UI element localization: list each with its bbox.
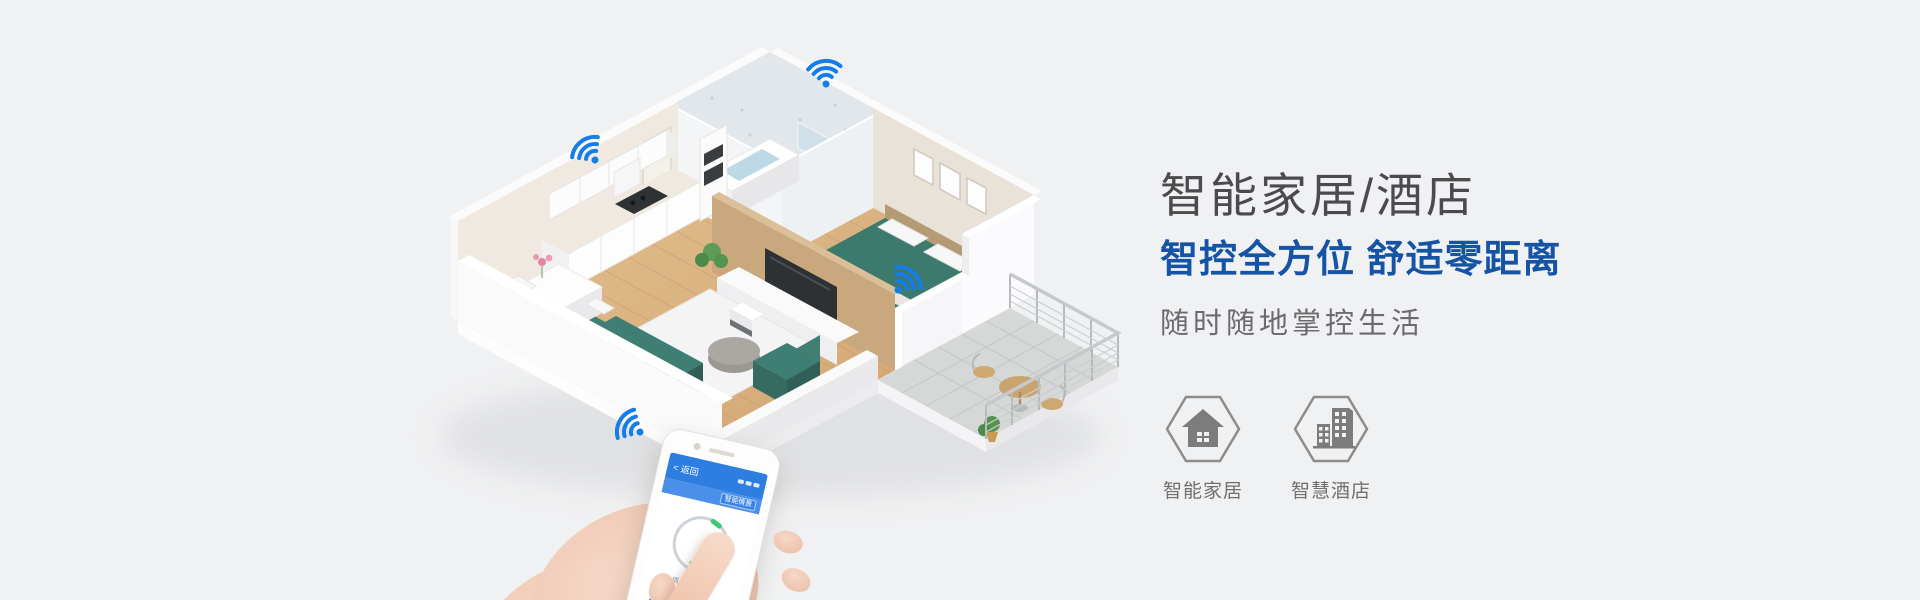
back-button: < 返回	[672, 460, 700, 478]
category-row: 智能家居	[1160, 392, 1374, 503]
fingertip	[778, 564, 815, 597]
hero-subtitle: 智控全方位 舒适零距离	[1160, 239, 1562, 283]
hero-tagline: 随时随地掌控生活	[1160, 300, 1562, 342]
category-label: 智能家居	[1163, 476, 1243, 503]
house-icon	[1182, 409, 1224, 447]
status-icons	[737, 479, 759, 488]
category-smart-hotel[interactable]: 智慧酒店	[1288, 392, 1374, 503]
hexagon-house-icon	[1163, 392, 1243, 466]
phone-camera-dot	[693, 442, 701, 450]
fingertip	[770, 527, 805, 557]
page-title: 智能家居/酒店	[1160, 170, 1562, 222]
pouf	[708, 337, 760, 373]
phone-speaker	[709, 448, 735, 458]
dial-tick-top	[710, 518, 723, 530]
hexagon-building-icon	[1291, 392, 1371, 466]
hero-banner: < 返回 智能情景 情景已开启 ⊙ 灯光控制	[0, 0, 1920, 600]
category-label: 智慧酒店	[1291, 476, 1371, 503]
copy-block: 智能家居/酒店 智控全方位 舒适零距离 随时随地掌控生活	[1160, 170, 1562, 342]
category-smart-home[interactable]: 智能家居	[1160, 392, 1246, 503]
hand-holding-phone: < 返回 智能情景 情景已开启 ⊙ 灯光控制	[545, 415, 925, 600]
hotel-building-icon	[1313, 408, 1355, 449]
